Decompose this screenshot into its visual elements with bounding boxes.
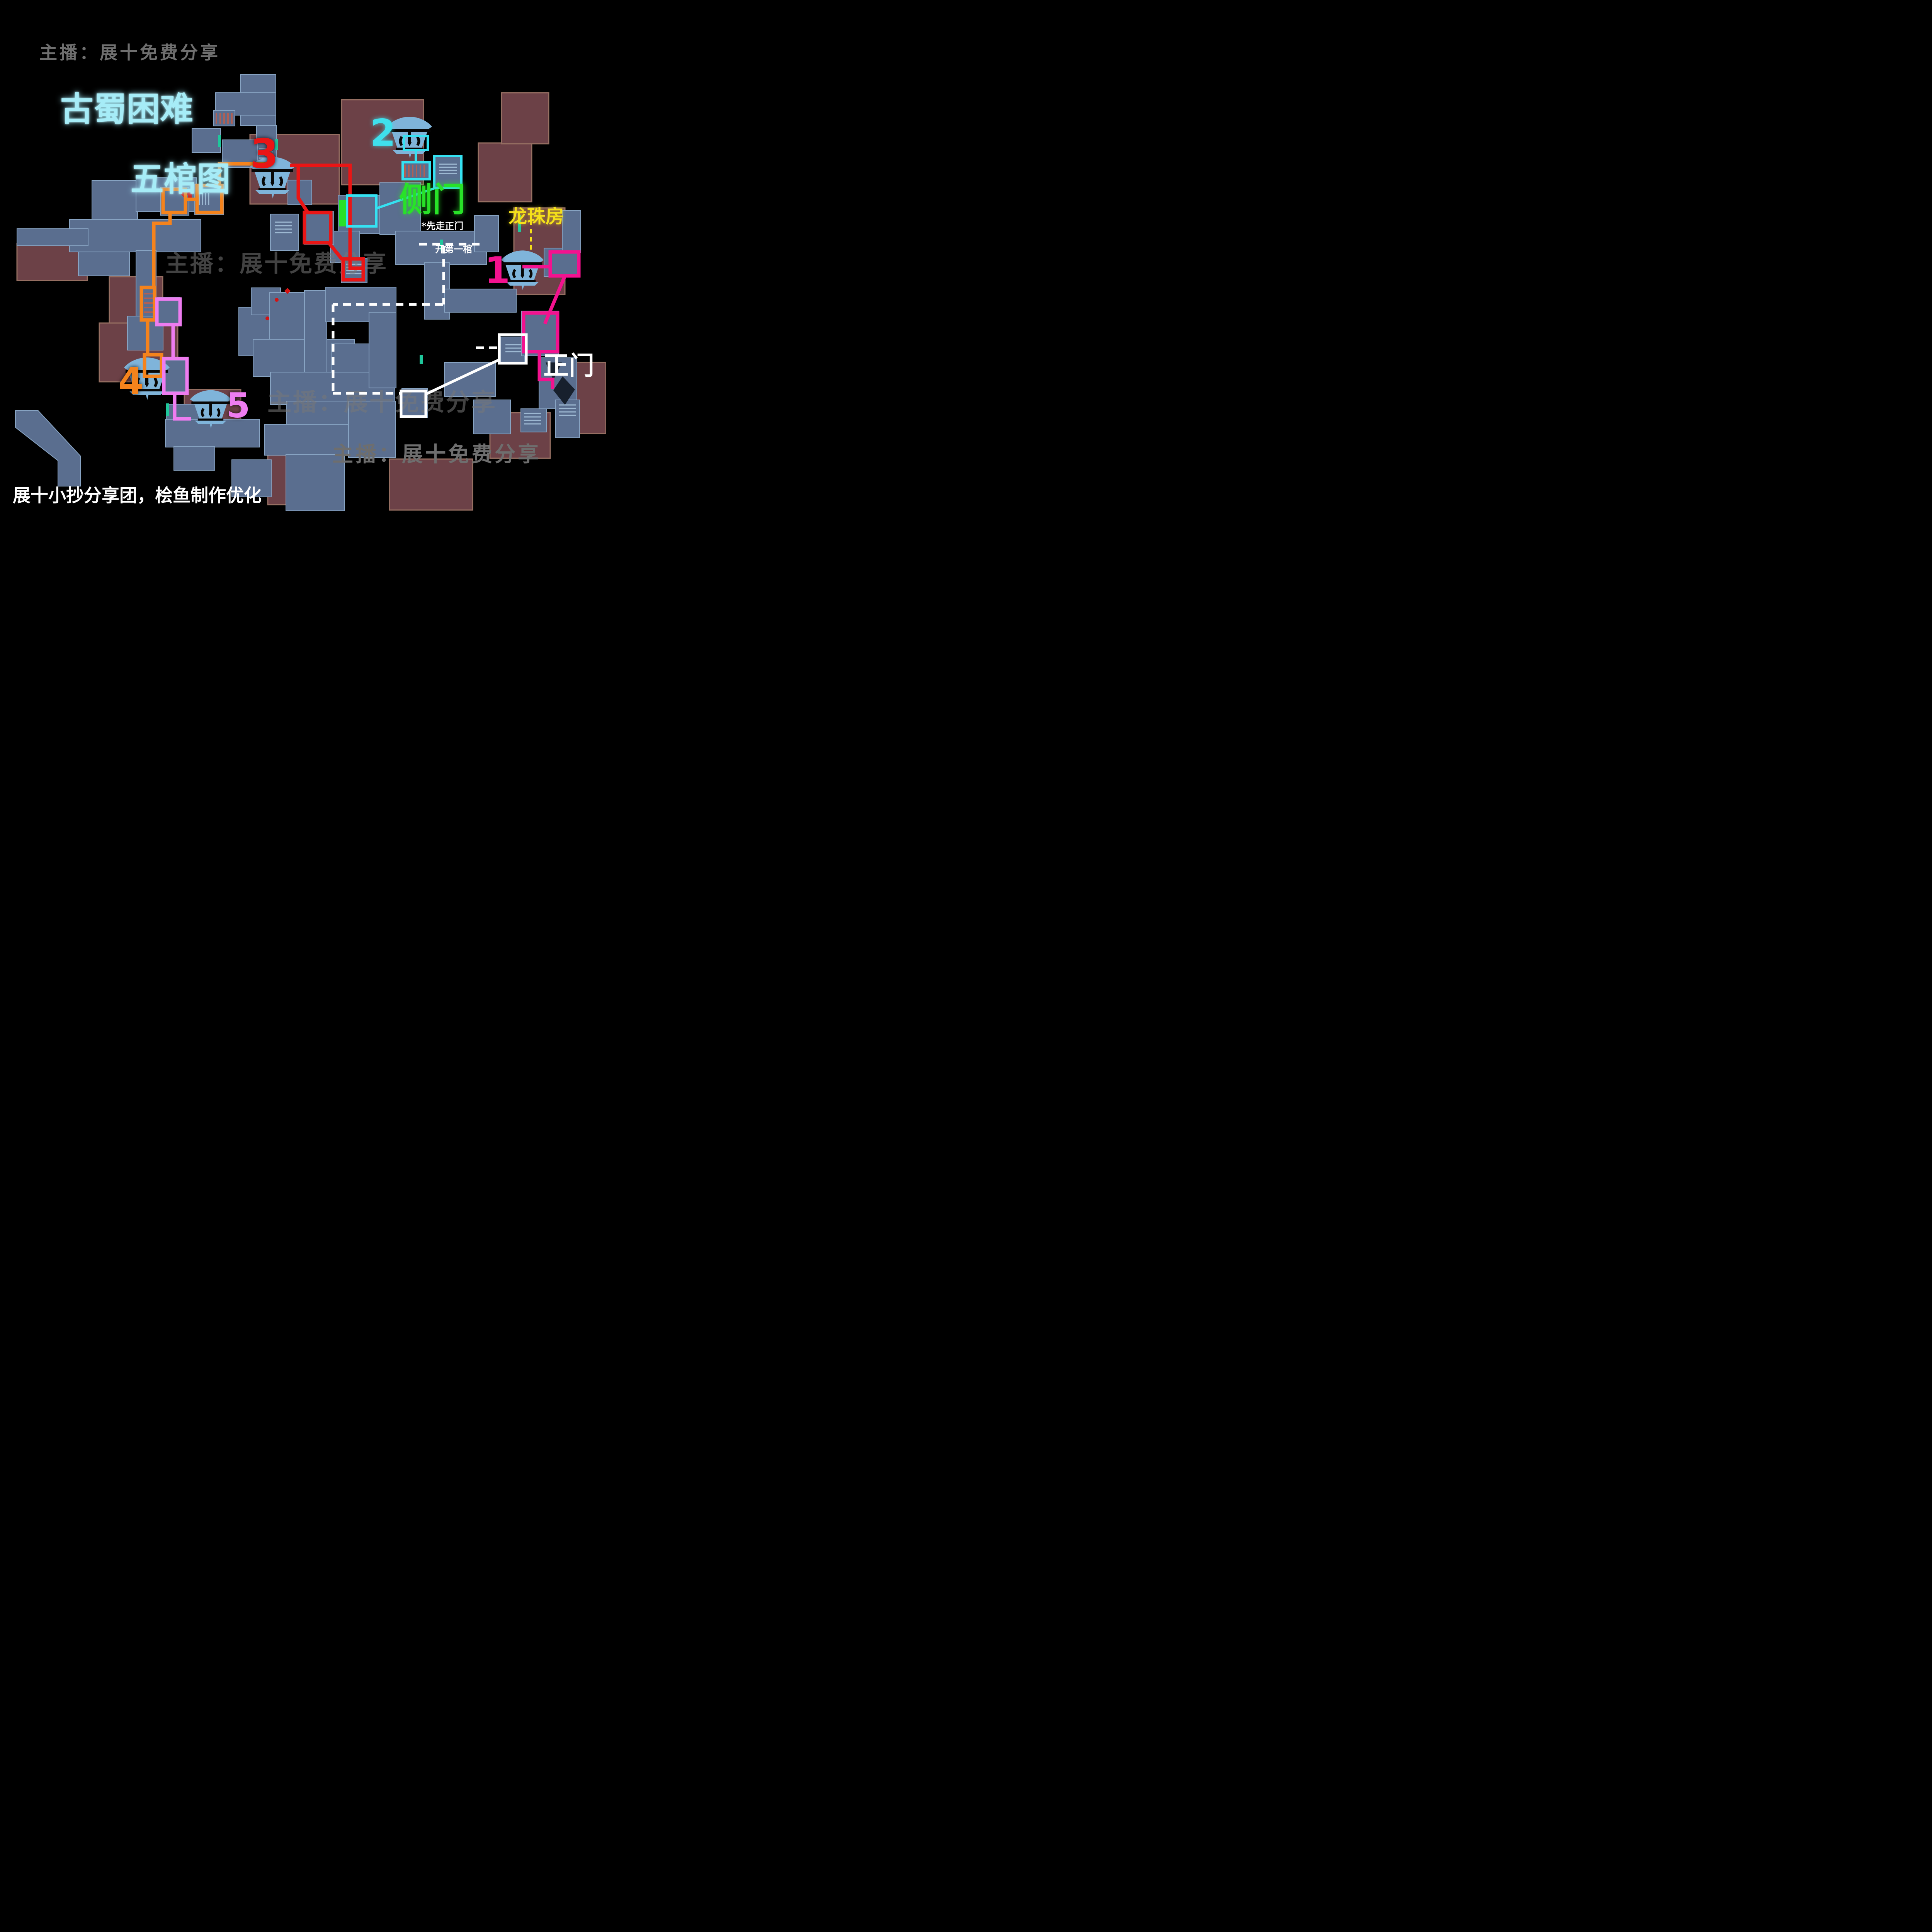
side-door-note-line2: 开第一棺 <box>435 244 472 255</box>
coffin-1-number: 1 <box>485 252 510 291</box>
title-line2: 五棺图 <box>131 160 230 199</box>
route-main-gate <box>401 335 526 417</box>
coffin-5-number: 5 <box>226 388 250 423</box>
footer-credit: 展十小抄分享团，桧鱼制作优化 <box>13 486 262 505</box>
route-coffin3 <box>290 165 363 280</box>
page-title: 古蜀困难 五棺图 <box>49 92 204 197</box>
map-guide-stage: 主播：展十免费分享 主播：展十免费分享 <box>0 0 606 522</box>
side-door-note: *先走正门 开第一棺 <box>402 220 483 255</box>
watermark-bottom-right: 主播：展十免费分享 <box>332 444 541 466</box>
coffin-4-number: 4 <box>118 362 144 401</box>
side-door-note-line1: *先走正门 <box>422 221 464 231</box>
watermark-top: 主播：展十免费分享 <box>39 43 220 62</box>
coffin-5-icon <box>190 390 231 429</box>
main-gate-label: 正门 <box>543 352 594 379</box>
coffin-2-number: 2 <box>370 114 396 153</box>
side-door-label: 侧门 <box>399 182 466 217</box>
dragon-ball-room-label: 龙珠房 <box>509 206 529 228</box>
coffin-3-number: 3 <box>250 133 278 175</box>
title-line1: 古蜀困难 <box>60 90 193 129</box>
